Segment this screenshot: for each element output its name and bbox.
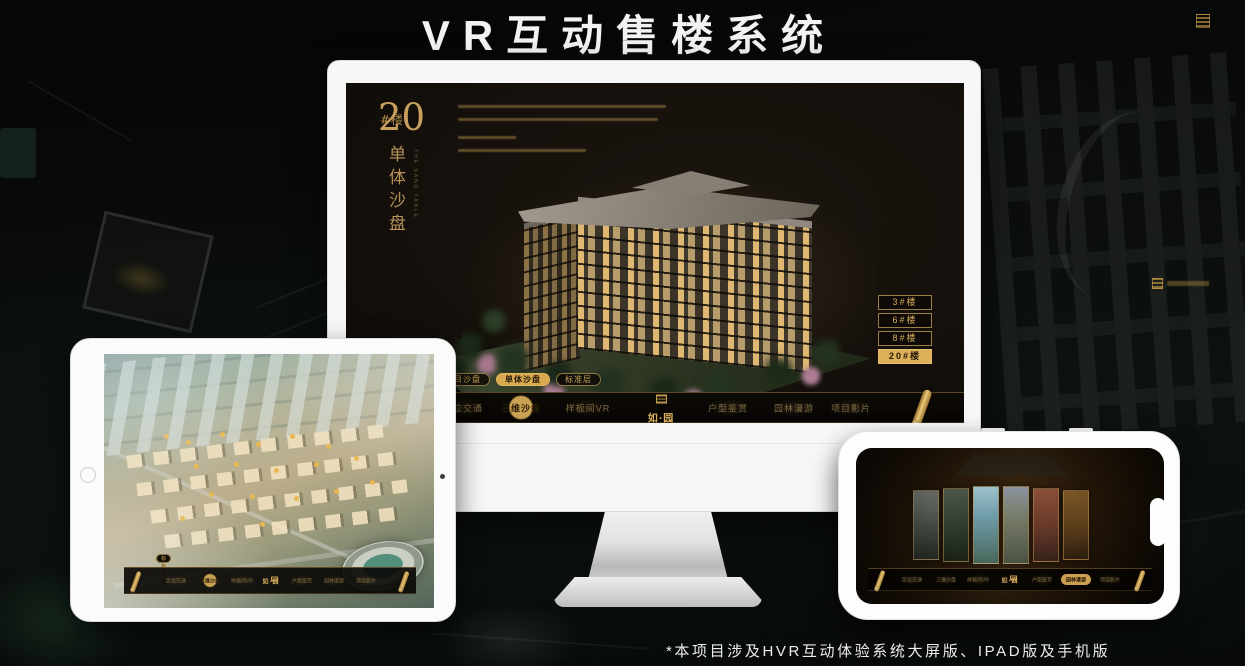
monitor-stand-base	[554, 577, 762, 607]
building-left-facade	[524, 211, 580, 372]
nav-item-3d-sandtable[interactable]: 三维沙盘	[193, 577, 227, 584]
nav-item-3d-sandtable[interactable]: 三维沙盘	[489, 401, 553, 414]
nav-item-project-film[interactable]: 项目影片	[349, 577, 383, 584]
background-logo-text-blur	[1167, 281, 1209, 286]
monitor-stand-neck	[588, 512, 728, 580]
floor-button-3[interactable]: 3#楼	[878, 295, 932, 310]
phone-navbar: 区位交通 三维沙盘 样板间VR 如·园 户型鉴赏 园林漫游 项目影片	[868, 568, 1152, 591]
phone-device: 区位交通 三维沙盘 样板间VR 如·园 户型鉴赏 园林漫游 项目影片	[838, 431, 1180, 620]
phone-screen: 区位交通 三维沙盘 样板间VR 如·园 户型鉴赏 园林漫游 项目影片	[856, 448, 1164, 604]
scroll-icon[interactable]	[911, 388, 932, 423]
vertical-subtitle-en: THE SAND TABLE	[410, 149, 418, 259]
tablet-navbar: 区位交通 三维沙盘 样板间VR 如·园 户型鉴赏 园林漫游 项目影片	[124, 567, 416, 594]
page-title: VR互动售楼系统	[0, 2, 1245, 63]
subtab-single-sandtable[interactable]: 单体沙盘	[496, 373, 550, 386]
nav-item-garden-roam[interactable]: 园林漫游	[762, 401, 826, 414]
stage: VR互动售楼系统 20#楼 单体沙盘 THE SAND TABLE 3#楼 6#…	[0, 0, 1245, 666]
nav-item-floorplan[interactable]: 户型鉴赏	[696, 401, 760, 414]
nav-item-showroom-vr[interactable]: 样板间VR	[556, 401, 620, 414]
scroll-icon[interactable]	[130, 570, 142, 591]
nav-item-showroom-vr[interactable]: 样板间VR	[961, 576, 995, 583]
ruyuan-logo: 如·园	[636, 391, 686, 423]
tablet-home-button[interactable]	[80, 467, 96, 483]
vertical-title: 单体沙盘	[386, 145, 408, 265]
subtab-standard-floor[interactable]: 标准层	[556, 373, 601, 386]
tablet-screen: 项目沙盘 单体沙盘 标准层 区位交通 三维沙盘 样板间VR 如·园 户型鉴赏 园…	[104, 354, 434, 608]
nav-item-location-traffic[interactable]: 区位交通	[895, 576, 929, 583]
nav-item-floorplan[interactable]: 户型鉴赏	[285, 577, 319, 584]
scroll-icon[interactable]	[1134, 569, 1146, 590]
nav-item-project-film[interactable]: 项目影片	[1093, 576, 1127, 583]
background-logo-emblem	[1152, 278, 1163, 289]
tablet-camera-icon	[440, 474, 445, 479]
phone-notch	[1150, 498, 1166, 546]
phone-power-button[interactable]	[1069, 428, 1093, 432]
scroll-icon[interactable]	[398, 570, 410, 591]
background-sign	[0, 128, 36, 178]
floor-button-20[interactable]: 20#楼	[878, 349, 932, 364]
scroll-icon[interactable]	[874, 569, 886, 590]
nav-item-showroom-vr[interactable]: 样板间VR	[225, 577, 259, 584]
building-number-heading: 20#楼	[378, 99, 404, 136]
subtab-bar: 项目沙盘 单体沙盘 标准层	[436, 373, 601, 386]
nav-item-3d-sandtable[interactable]: 三维沙盘	[929, 576, 963, 583]
nav-item-garden-roam[interactable]: 园林漫游	[1059, 576, 1093, 583]
nav-item-location-traffic[interactable]: 区位交通	[159, 577, 193, 584]
tablet-device: 项目沙盘 单体沙盘 标准层 区位交通 三维沙盘 样板间VR 如·园 户型鉴赏 园…	[70, 338, 456, 622]
phone-volume-button[interactable]	[981, 428, 1005, 432]
building-trees	[456, 333, 462, 339]
nav-item-project-film[interactable]: 项目影片	[819, 401, 883, 414]
floor-button-8[interactable]: 8#楼	[878, 331, 932, 346]
ruyuan-logo: 如·园	[256, 576, 286, 585]
nav-item-garden-roam[interactable]: 园林漫游	[317, 577, 351, 584]
footnote: *本项目涉及HVR互动体验系统大屏版、IPAD版及手机版	[666, 640, 1110, 661]
ruyuan-seal-icon	[656, 394, 667, 403]
nav-item-floorplan[interactable]: 户型鉴赏	[1025, 576, 1059, 583]
floor-button-6[interactable]: 6#楼	[878, 313, 932, 328]
ruyuan-logo: 如·园	[995, 575, 1025, 584]
floor-button-group: 3#楼 6#楼 8#楼 20#楼	[878, 295, 936, 367]
subtab-standard-floor[interactable]: 标准层	[156, 554, 171, 563]
